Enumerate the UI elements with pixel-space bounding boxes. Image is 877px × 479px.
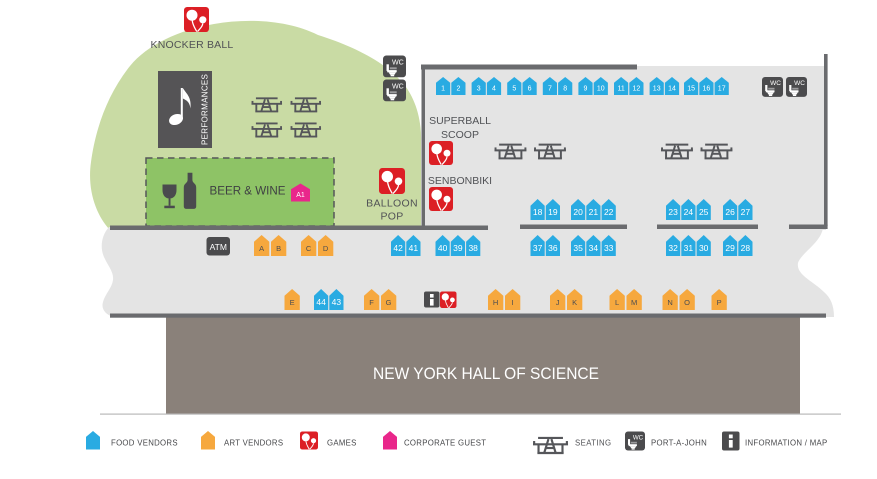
svg-text:34: 34: [589, 243, 599, 253]
svg-text:BALLOON: BALLOON: [366, 198, 418, 210]
svg-text:13: 13: [653, 86, 661, 93]
svg-text:P: P: [717, 298, 722, 307]
svg-text:NEW YORK HALL OF SCIENCE: NEW YORK HALL OF SCIENCE: [373, 364, 599, 383]
svg-text:27: 27: [741, 207, 751, 217]
svg-text:36: 36: [548, 243, 558, 253]
svg-text:15: 15: [687, 86, 695, 93]
svg-text:BEER & WINE: BEER & WINE: [210, 184, 286, 198]
svg-text:F: F: [369, 298, 374, 307]
svg-text:D: D: [323, 244, 329, 253]
svg-text:40: 40: [438, 243, 448, 253]
svg-text:6: 6: [528, 86, 532, 93]
svg-text:C: C: [306, 244, 312, 253]
svg-text:18: 18: [533, 207, 543, 217]
svg-text:SENBONBIKI: SENBONBIKI: [428, 175, 492, 187]
svg-text:28: 28: [741, 243, 751, 253]
svg-text:PORT-A-JOHN: PORT-A-JOHN: [651, 439, 707, 448]
svg-text:35: 35: [573, 243, 583, 253]
svg-text:22: 22: [604, 207, 614, 217]
svg-text:4: 4: [492, 86, 496, 93]
svg-text:26: 26: [725, 207, 735, 217]
svg-text:38: 38: [468, 243, 478, 253]
svg-text:ART VENDORS: ART VENDORS: [224, 439, 283, 448]
svg-text:L: L: [615, 298, 619, 307]
svg-text:23: 23: [668, 207, 678, 217]
svg-text:I: I: [512, 298, 514, 307]
svg-text:10: 10: [597, 86, 605, 93]
svg-text:GAMES: GAMES: [327, 439, 357, 448]
svg-text:14: 14: [668, 86, 676, 93]
svg-text:1: 1: [441, 86, 445, 93]
svg-text:WC: WC: [633, 434, 644, 441]
svg-text:KNOCKER BALL: KNOCKER BALL: [151, 39, 234, 51]
svg-text:POP: POP: [380, 211, 403, 223]
svg-text:E: E: [290, 298, 295, 307]
svg-text:3: 3: [477, 86, 481, 93]
svg-text:16: 16: [703, 86, 711, 93]
svg-text:8: 8: [563, 86, 567, 93]
svg-text:A: A: [259, 244, 264, 253]
svg-text:24: 24: [684, 207, 694, 217]
svg-text:J: J: [556, 298, 560, 307]
svg-text:CORPORATE GUEST: CORPORATE GUEST: [404, 439, 486, 448]
svg-text:2: 2: [456, 86, 460, 93]
svg-text:11: 11: [617, 86, 624, 93]
svg-text:44: 44: [316, 297, 326, 307]
svg-text:O: O: [684, 298, 690, 307]
svg-text:WC: WC: [770, 80, 781, 87]
svg-text:9: 9: [584, 86, 588, 93]
svg-text:43: 43: [332, 297, 342, 307]
svg-text:20: 20: [573, 207, 583, 217]
svg-text:12: 12: [633, 86, 641, 93]
svg-text:17: 17: [718, 86, 726, 93]
svg-text:N: N: [667, 298, 672, 307]
svg-text:41: 41: [409, 243, 419, 253]
svg-text:G: G: [386, 298, 392, 307]
svg-text:33: 33: [604, 243, 614, 253]
svg-text:H: H: [493, 298, 498, 307]
svg-text:5: 5: [512, 86, 516, 93]
svg-text:FOOD VENDORS: FOOD VENDORS: [111, 439, 178, 448]
svg-text:INFORMATION / MAP: INFORMATION / MAP: [745, 439, 828, 448]
svg-text:29: 29: [725, 243, 735, 253]
svg-text:42: 42: [393, 243, 403, 253]
svg-text:A1: A1: [296, 192, 305, 199]
svg-text:39: 39: [453, 243, 463, 253]
svg-text:WC: WC: [392, 59, 404, 67]
svg-text:30: 30: [699, 243, 709, 253]
svg-text:M: M: [631, 298, 637, 307]
svg-text:32: 32: [668, 243, 678, 253]
svg-text:25: 25: [699, 207, 709, 217]
svg-text:PERFORMANCES: PERFORMANCES: [201, 74, 210, 145]
svg-text:37: 37: [533, 243, 543, 253]
svg-text:B: B: [276, 244, 281, 253]
svg-text:WC: WC: [392, 83, 404, 91]
svg-text:7: 7: [548, 86, 552, 93]
svg-text:21: 21: [589, 207, 599, 217]
svg-text:19: 19: [548, 207, 558, 217]
svg-text:SCOOP: SCOOP: [441, 129, 479, 141]
svg-text:SUPERBALL: SUPERBALL: [429, 115, 491, 127]
svg-text:K: K: [572, 298, 577, 307]
svg-text:SEATING: SEATING: [575, 439, 611, 448]
svg-text:31: 31: [684, 243, 694, 253]
svg-text:ATM: ATM: [210, 242, 227, 252]
svg-text:WC: WC: [794, 80, 805, 87]
